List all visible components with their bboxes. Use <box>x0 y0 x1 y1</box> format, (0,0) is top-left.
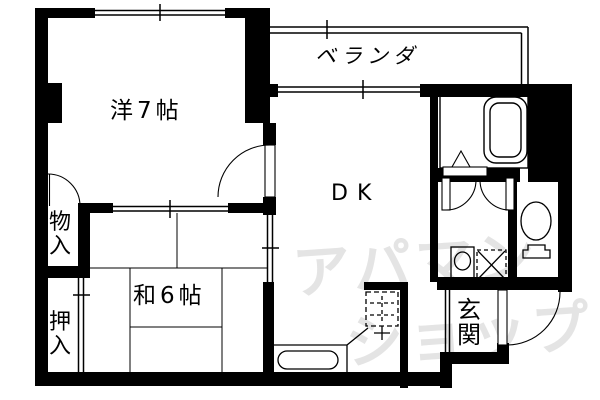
door-western-leaf <box>265 145 275 197</box>
bathroom <box>440 92 528 176</box>
room-label-closet: 押 入 <box>49 311 71 359</box>
wall-dk-left <box>263 282 274 374</box>
kitchen-sink <box>278 351 338 369</box>
toilet-room <box>521 202 551 258</box>
room-label-veranda: ベランダ <box>315 45 419 68</box>
wall-dk-right <box>430 96 438 282</box>
wall-kitchen-stub <box>364 282 408 290</box>
wall-right <box>558 97 572 292</box>
room-label-storage: 物 入 <box>49 211 71 259</box>
wall-top-left <box>35 8 95 18</box>
bath-door-triangle <box>452 151 470 167</box>
wall-door-stub <box>497 343 509 364</box>
door-western-arc <box>218 145 270 197</box>
toilet-bowl <box>521 202 551 240</box>
toilet-base <box>523 245 550 258</box>
bathtub-inner <box>490 103 521 157</box>
door-entrance-arc <box>507 292 560 345</box>
room-label-entrance: 玄 関 <box>457 298 481 348</box>
sliding-door-japanese-dk <box>262 215 279 282</box>
gas-stove-mark <box>374 326 390 340</box>
kitchen <box>268 292 398 374</box>
door-storage-arc <box>48 174 80 206</box>
wall-mid-upper <box>263 123 276 145</box>
sliding-door-closet <box>73 278 90 372</box>
wall-storage-bottom <box>35 266 90 278</box>
floor-plan: アパマン ショップ <box>0 0 600 400</box>
gas-stove-burners <box>370 296 394 322</box>
washbasin-bowl <box>455 252 471 270</box>
floor-plan-drawing <box>0 0 600 400</box>
window-western <box>95 4 225 21</box>
bath-folding-door <box>443 167 487 176</box>
door-toilet-leaf <box>506 178 514 210</box>
wall-left <box>35 8 48 386</box>
wall-toilet-top <box>528 140 572 182</box>
room-label-dk: DK <box>331 182 380 206</box>
door-washroom-leaf <box>442 178 450 210</box>
wall-bottom <box>35 372 452 386</box>
room-label-western: 洋7帖 <box>110 99 183 124</box>
washroom <box>451 247 506 280</box>
wall-pillar-western <box>48 83 62 123</box>
genkan-step-edge <box>446 290 450 352</box>
wall-top-band-a <box>265 84 278 97</box>
wall-kitchen-right <box>400 290 408 388</box>
walls <box>35 8 572 388</box>
sliding-door-dk-veranda <box>278 80 420 99</box>
room-label-japanese: 和6帖 <box>133 284 206 309</box>
door-entrance-leaf <box>498 290 507 345</box>
wall-column-west <box>245 8 270 123</box>
washing-machine-x <box>478 251 505 279</box>
sliding-partition-west-japanese <box>113 200 228 218</box>
wall-band-b <box>228 203 270 213</box>
